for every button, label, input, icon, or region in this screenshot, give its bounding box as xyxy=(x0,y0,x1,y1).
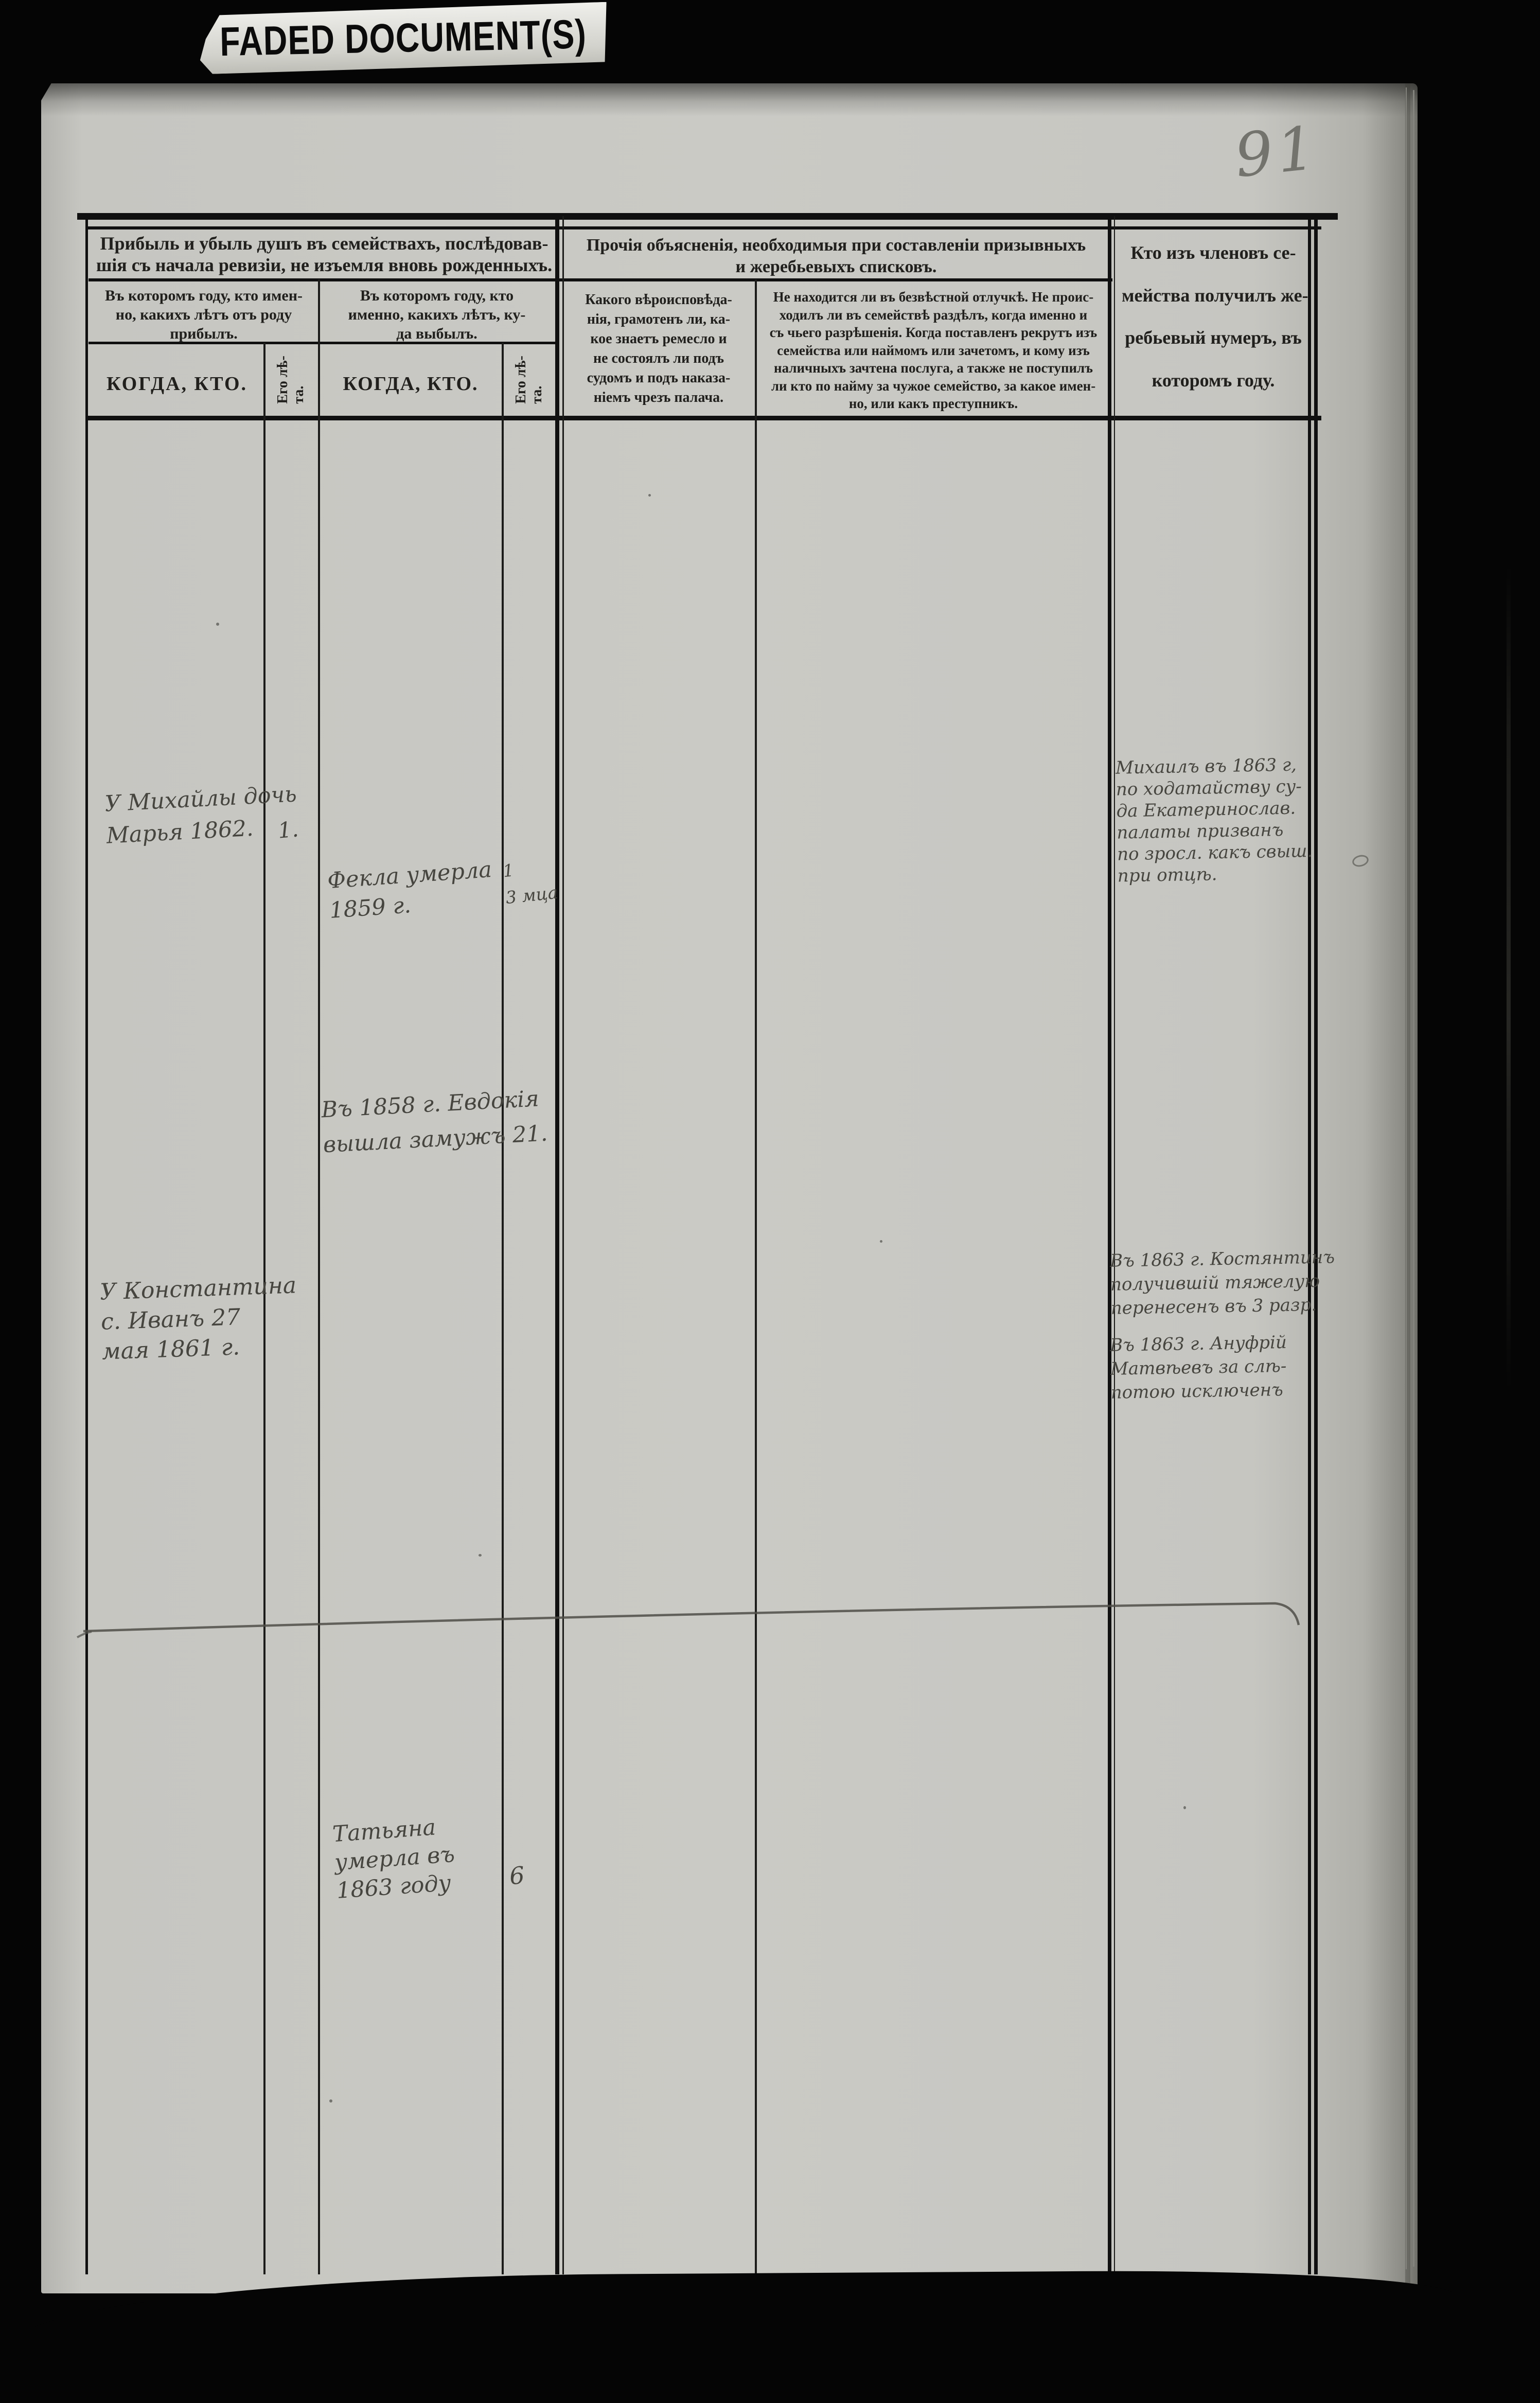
speckle xyxy=(329,2099,332,2102)
speckle xyxy=(1183,1806,1186,1809)
speckle xyxy=(216,623,219,626)
scan-background: FADED DOCUMENT(S) 91 Прибыль и убыль душ… xyxy=(0,0,1540,2403)
handwritten-divider-line xyxy=(0,0,1540,2403)
speckle xyxy=(648,494,651,497)
speckle xyxy=(479,1554,482,1557)
speckle xyxy=(880,1240,882,1243)
